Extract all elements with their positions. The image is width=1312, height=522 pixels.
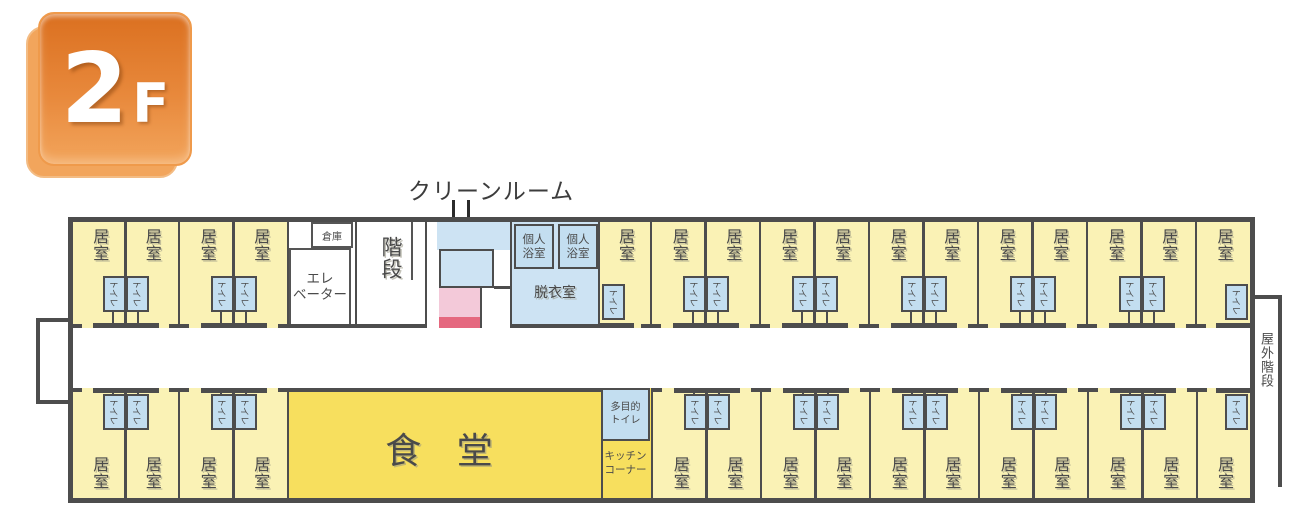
storage-room: 倉庫 [311,222,353,248]
clean-room-inner-box [439,249,494,288]
floor-suffix: F [132,72,169,135]
toilet-text: トイレ [1125,398,1138,425]
toilet-text: トイレ [798,398,811,425]
resident-room-pair: 居室居室トイレトイレ [73,222,178,328]
resident-room-label: 居室 [979,228,1033,262]
resident-room-text: 居室 [830,456,854,490]
floor-number: 2 [61,14,129,164]
private-bath-room: 個人浴室 [514,224,554,269]
resident-room-label: 居室 [652,228,706,262]
resident-room-text: 居室 [938,228,962,262]
toilet-text: トイレ [689,398,702,425]
resident-room-text: 居室 [668,456,692,490]
toilet-box: トイレ [103,276,126,312]
resident-room-label: 居室 [706,228,760,262]
corridor-wall-stub [1077,324,1086,328]
toilet-box: トイレ [1034,394,1057,430]
corridor-wall-stub [750,324,759,328]
toilet-text: トイレ [930,398,943,425]
top-room-row: 居室居室トイレトイレ居室居室トイレトイレ倉庫エレベーター階段個人浴室個人浴室脱衣… [73,222,1250,328]
toilet-box: トイレ [683,276,706,312]
dining-corridor-wall [289,388,601,392]
resident-room-label: 居室 [600,228,650,262]
corridor-wall-stub [969,388,978,392]
resident-room-label: 居室 [73,456,126,490]
toilet-text: トイレ [688,280,701,307]
resident-room-label: 居室 [1142,228,1196,262]
corridor-wall-bar [674,388,740,393]
resident-room-label: 居室 [870,228,924,262]
service-core-cell: 倉庫エレベーター [287,222,355,328]
stairs-label: 階段 [376,236,406,280]
resident-room-text: 居室 [885,228,909,262]
resident-room-pair: 居室居室トイレトイレ [1086,222,1195,328]
private-bath-label-line: 浴室 [567,247,590,260]
toilet-box: トイレ [901,276,924,312]
resident-room-label: 居室 [653,456,707,490]
clean-room-label: クリーンルーム [408,172,574,206]
kitchen-corner-label-line: キッチン [603,450,648,464]
toilet-text: トイレ [906,280,919,307]
resident-room-text: 居室 [721,456,745,490]
resident-room-pair: 居室居室トイレトイレ [977,222,1086,328]
resident-room-label: 居室 [925,456,979,490]
toilet-text: トイレ [131,280,144,307]
corridor-wall-stub [73,324,82,328]
resident-room-text: 居室 [994,228,1018,262]
resident-room-text: 居室 [140,456,164,490]
toilet-text: トイレ [1016,398,1029,425]
bath-corridor-wall [512,324,598,328]
corridor-wall-stub [169,388,178,392]
clean-room-upper-area [437,222,510,250]
toilet-pair: トイレトイレ [1119,276,1165,312]
resident-room-label: 居室 [1197,228,1250,262]
floor-badge-front-layer: 2 F [38,12,192,166]
corridor-wall-stub [180,324,189,328]
toilet-box: トイレ [902,394,925,430]
corridor-wall-stub [751,388,760,392]
dining-hall-label: 食 堂 [289,422,601,474]
resident-room-text: 居室 [1104,456,1128,490]
resident-room-label: 居室 [126,456,179,490]
toilet-pair: トイレトイレ [902,394,948,430]
toilet-pair: トイレトイレ [103,394,149,430]
corridor-wall-stub [1089,388,1098,392]
resident-room-text: 居室 [87,228,111,262]
toilet-box: トイレ [1225,284,1248,320]
toilet-text: トイレ [1038,280,1051,307]
toilet-box: トイレ [1011,394,1034,430]
resident-room-text: 居室 [1157,456,1181,490]
toilet-pair: トイレトイレ [793,394,839,430]
resident-room-label: 居室 [1198,456,1250,490]
resident-room-pair: 居室居室トイレトイレ [760,388,869,498]
private-bath-label-line: 個人 [567,233,590,246]
toilet-text: トイレ [820,280,833,307]
corridor-wall-stub [278,324,287,328]
changing-room-label: 脱衣室 [512,282,598,302]
toilet-pair: トイレトイレ [684,394,730,430]
toilet-box: トイレ [1225,394,1248,430]
resident-room-label: 居室 [73,228,126,262]
toilet-text: トイレ [1148,398,1161,425]
corridor-wall-bar [673,323,739,328]
toilet-text: トイレ [821,398,834,425]
building-outline: 居室居室トイレトイレ居室居室トイレトイレ倉庫エレベーター階段個人浴室個人浴室脱衣… [68,217,1255,503]
resident-room-pair: 居室居室トイレトイレ [73,388,178,498]
toilet-text: トイレ [131,398,144,425]
resident-room-label: 居室 [871,456,925,490]
toilet-box: トイレ [126,276,149,312]
resident-room-text: 居室 [1212,456,1236,490]
corridor-wall-stub [169,324,178,328]
kitchen-corner-label: キッチンコーナー [603,450,648,477]
toilet-pair: トイレトイレ [901,276,947,312]
toilet-box: トイレ [234,276,257,312]
resident-room-text: 居室 [1103,228,1127,262]
private-bath-room: 個人浴室 [558,224,598,269]
toilet-text: トイレ [607,288,620,315]
corridor-wall-bar [892,388,958,393]
corridor-wall-stub [968,324,977,328]
resident-room-text: 居室 [886,456,910,490]
resident-room-label: 居室 [1088,228,1142,262]
toilet-box: トイレ [1033,276,1056,312]
toilet-pair: トイレトイレ [1011,394,1057,430]
toilet-box: トイレ [707,394,730,430]
toilet-box: トイレ [684,394,707,430]
corridor-wall-stub [860,388,869,392]
resident-room-pair: 居室居室トイレトイレ [868,222,977,328]
kitchen-corner-label-line: コーナー [603,464,648,478]
corridor-wall-stub [73,388,82,392]
toilet-text: トイレ [108,280,121,307]
toilet-box: トイレ [815,276,838,312]
corridor-wall-stub [979,324,988,328]
resident-room-single: 居室トイレ [1196,388,1250,498]
elevator-label-line: ベーター [293,287,347,303]
toilet-pair: トイレトイレ [211,394,257,430]
toilet-text: トイレ [239,398,252,425]
corridor-wall-bar [1000,323,1066,328]
resident-room-label: 居室 [816,456,870,490]
private-bath-label-line: 浴室 [523,247,546,260]
resident-room-label: 居室 [980,456,1034,490]
corridor-wall-bar [1109,323,1175,328]
corridor-wall-stub [762,388,771,392]
toilet-pair: トイレトイレ [1120,394,1166,430]
toilet-box: トイレ [126,394,149,430]
corridor-wall-stub [641,324,650,328]
toilet-box: トイレ [211,394,234,430]
toilet-box: トイレ [103,394,126,430]
resident-room-label: 居室 [1143,456,1197,490]
corridor-wall-bar [783,388,849,393]
corridor-wall-stub [761,324,770,328]
toilet-box: トイレ [793,394,816,430]
resident-room-label: 居室 [234,228,288,262]
corridor-wall-bar [93,388,159,393]
toilet-text: トイレ [216,280,229,307]
toilet-box: トイレ [924,276,947,312]
floor-badge: 2 F [26,12,194,184]
toilet-text: トイレ [1230,288,1243,315]
corridor-wall-bar [1216,388,1250,393]
resident-room-label: 居室 [1089,456,1143,490]
resident-room-text: 居室 [140,228,164,262]
resident-room-label: 居室 [1034,456,1088,490]
bottom-room-row: 居室居室トイレトイレ居室居室トイレトイレ食 堂多目的トイレキッチンコーナー居室居… [73,388,1250,498]
stairs-cell: 階段 [355,222,425,328]
corridor-wall-bar [201,388,267,393]
resident-room-single: 居室トイレ [1195,222,1250,328]
toilet-box: トイレ [706,276,729,312]
corridor-wall-stub [180,388,189,392]
resident-room-pair: 居室居室トイレトイレ [1087,388,1196,498]
toilet-text: トイレ [712,398,725,425]
toilet-text: トイレ [1124,280,1137,307]
resident-room-text: 居室 [1047,228,1071,262]
dining-hall: 食 堂 [287,388,601,498]
toilet-box: トイレ [1142,276,1165,312]
corridor-wall-bar [782,323,848,328]
resident-room-pair: 居室居室トイレトイレ [178,388,287,498]
toilet-text: トイレ [711,280,724,307]
toilet-box: トイレ [1143,394,1166,430]
stairs-corridor-wall [357,324,425,328]
corridor-wall-stub [278,388,287,392]
multipurpose-toilet-label-line: 多目的 [611,402,641,415]
resident-room-text: 居室 [195,228,219,262]
toilet-box: トイレ [234,394,257,430]
resident-room-label: 居室 [815,228,869,262]
elevator: エレベーター [289,248,351,326]
resident-room-label: 居室 [924,228,978,262]
resident-room-text: 居室 [195,456,219,490]
toilet-box: トイレ [211,276,234,312]
resident-room-text: 居室 [720,228,744,262]
corridor-wall-bar [93,323,159,328]
resident-room-pair: 居室居室トイレトイレ [978,388,1087,498]
clean-room-cell [425,222,510,328]
floor-plan-page: 2 F クリーンルーム ケアステーション 居室居室トイレトイレ居室居室トイレトイ… [0,0,1312,522]
corridor-wall-stub [871,388,880,392]
resident-room-text: 居室 [667,228,691,262]
resident-room-pair: 居室居室トイレトイレ [650,222,759,328]
resident-room-text: 居室 [613,228,637,262]
toilet-text: トイレ [1015,280,1028,307]
corridor-wall-bar [1216,323,1250,328]
resident-room-text: 居室 [1156,228,1180,262]
resident-room-single: 居室トイレ [598,222,650,328]
toilet-text: トイレ [1230,398,1243,425]
corridor-wall-bar [201,323,267,328]
corridor-wall-bar [600,323,634,328]
toilet-text: トイレ [907,398,920,425]
corridor-wall-stub [1078,388,1087,392]
toilet-text: トイレ [797,280,810,307]
resident-room-text: 居室 [939,456,963,490]
toilet-pair: トイレトイレ [211,276,257,312]
resident-room-text: 居室 [995,456,1019,490]
resident-room-pair: 居室居室トイレトイレ [869,388,978,498]
corridor-wall-stub [1197,324,1206,328]
elevator-label-line: エレ [293,271,347,287]
outdoor-stairs-label: 屋外階段 [1256,332,1275,388]
toilet-box: トイレ [1120,394,1143,430]
corridor-wall-stub [1186,324,1195,328]
resident-room-label: 居室 [707,456,761,490]
care-station-counter [439,317,480,328]
resident-room-pair: 居室居室トイレトイレ [651,388,760,498]
private-bath-label-line: 個人 [523,233,546,246]
resident-room-label: 居室 [234,456,288,490]
resident-room-text: 居室 [248,228,272,262]
toilet-box: トイレ [602,284,625,320]
toilet-pair: トイレトイレ [1010,276,1056,312]
bath-block-cell: 個人浴室個人浴室脱衣室 [510,222,598,328]
toilet-text: トイレ [1147,280,1160,307]
corridor-wall-bar [891,323,957,328]
multipurpose-toilet-label-line: トイレ [611,415,641,428]
resident-room-label: 居室 [761,228,815,262]
resident-room-label: 居室 [180,456,234,490]
care-station-area [439,288,482,328]
resident-room-label: 居室 [1033,228,1087,262]
toilet-pair: トイレトイレ [792,276,838,312]
resident-room-text: 居室 [248,456,272,490]
toilet-box: トイレ [925,394,948,430]
resident-room-label: 居室 [180,228,234,262]
kitchen-corner-cell: 多目的トイレキッチンコーナー [601,388,651,498]
corridor-wall-bar [1001,388,1067,393]
care-station-pink [439,288,480,317]
corridor-wall-stub [980,388,989,392]
corridor-wall-bar [1110,388,1176,393]
toilet-box: トイレ [792,276,815,312]
multipurpose-toilet: 多目的トイレ [603,388,650,441]
resident-room-text: 居室 [1048,456,1072,490]
corridor-wall-stub [859,324,868,328]
core-corridor-wall [289,324,355,328]
toilet-pair: トイレトイレ [683,276,729,312]
toilet-text: トイレ [216,398,229,425]
resident-room-text: 居室 [1212,228,1236,262]
stairs-inner-wall [411,222,413,280]
resident-room-label: 居室 [762,456,816,490]
corridor-wall-stub [1187,388,1196,392]
resident-room-text: 居室 [777,456,801,490]
toilet-text: トイレ [1039,398,1052,425]
resident-room-text: 居室 [829,228,853,262]
outdoor-stairs-wall-side [1278,295,1282,487]
toilet-text: トイレ [929,280,942,307]
corridor-wall-stub [870,324,879,328]
corridor-wall-stub [1088,324,1097,328]
toilet-box: トイレ [1119,276,1142,312]
toilet-text: トイレ [108,398,121,425]
resident-room-pair: 居室居室トイレトイレ [178,222,287,328]
resident-room-text: 居室 [87,456,111,490]
toilet-text: トイレ [239,280,252,307]
resident-room-text: 居室 [776,228,800,262]
toilet-box: トイレ [816,394,839,430]
toilet-pair: トイレトイレ [103,276,149,312]
corridor-wall-stub [1198,388,1207,392]
corridor-wall-stub [652,324,661,328]
corridor-wall-stub [653,388,662,392]
toilet-box: トイレ [1010,276,1033,312]
resident-room-pair: 居室居室トイレトイレ [759,222,868,328]
resident-room-label: 居室 [126,228,179,262]
